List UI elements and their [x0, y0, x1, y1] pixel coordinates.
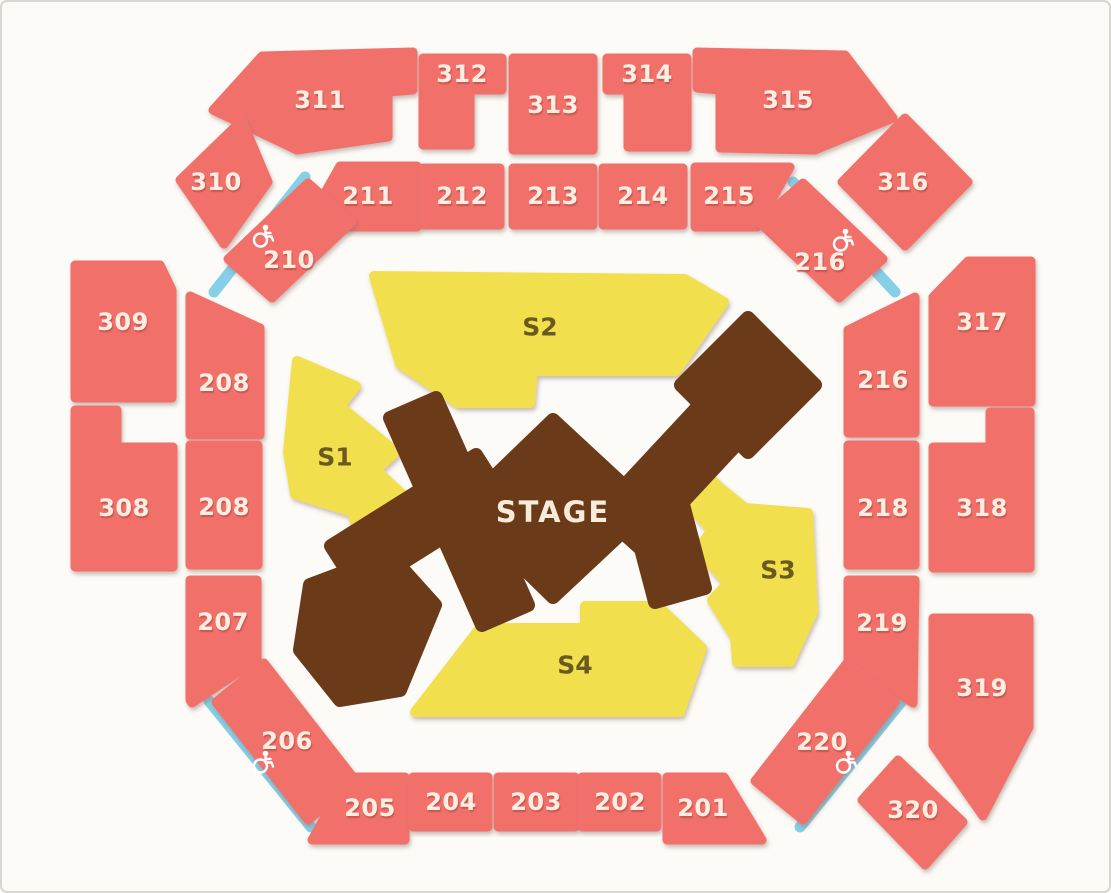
section-212-label: 212	[436, 182, 488, 210]
section-s2[interactable]: S2	[374, 276, 724, 403]
section-315[interactable]: 315	[697, 52, 893, 150]
section-218-label: 218	[857, 494, 909, 522]
section-208-lower[interactable]: 208	[190, 445, 258, 565]
section-214[interactable]: 214	[603, 168, 683, 225]
section-219-label: 219	[856, 609, 908, 637]
section-320-label: 320	[887, 796, 939, 824]
section-210-label: 210	[263, 246, 315, 274]
section-203-label: 203	[510, 788, 562, 816]
section-213-label: 213	[527, 182, 579, 210]
section-204-label: 204	[425, 788, 477, 816]
section-213[interactable]: 213	[513, 168, 593, 225]
section-206-label: 206	[261, 727, 313, 755]
section-320[interactable]: 320	[862, 760, 963, 865]
section-216-right-shape[interactable]	[848, 297, 915, 433]
section-314[interactable]: 314	[607, 58, 687, 147]
section-312[interactable]: 312	[423, 58, 502, 145]
section-319[interactable]: 319	[933, 618, 1029, 816]
section-309[interactable]: 309	[75, 265, 172, 398]
section-316[interactable]: 316	[842, 118, 968, 246]
section-203[interactable]: 203	[498, 777, 575, 827]
section-202[interactable]: 202	[582, 777, 657, 827]
section-s2-label: S2	[522, 313, 557, 342]
section-216-right[interactable]: 216	[848, 297, 915, 433]
section-s3-label: S3	[760, 556, 795, 585]
stage-label: STAGE	[496, 495, 610, 529]
section-212[interactable]: 212	[423, 168, 500, 225]
section-316-label: 316	[877, 168, 929, 196]
section-314-label: 314	[621, 60, 673, 88]
section-214-label: 214	[617, 182, 669, 210]
section-202-label: 202	[594, 788, 646, 816]
section-216-right-label: 216	[857, 366, 909, 394]
section-308-label: 308	[98, 494, 150, 522]
section-312-label: 312	[436, 60, 488, 88]
section-309-label: 309	[97, 308, 149, 336]
section-208-upper-label: 208	[198, 369, 250, 397]
section-308[interactable]: 308	[75, 410, 173, 567]
section-201-label: 201	[677, 794, 729, 822]
section-319-label: 319	[956, 674, 1008, 702]
section-310[interactable]: 310	[180, 120, 268, 244]
section-313[interactable]: 313	[513, 58, 593, 150]
section-319-shape[interactable]	[933, 618, 1029, 816]
section-s1-label: S1	[317, 443, 352, 472]
venue-map: 311 312 313 314 315 310 316 211	[0, 0, 1111, 893]
section-313-label: 313	[527, 91, 579, 119]
section-204[interactable]: 204	[413, 777, 488, 827]
section-311-label: 311	[294, 86, 346, 114]
section-220-label: 220	[796, 728, 848, 756]
section-211-label: 211	[342, 182, 394, 210]
section-310-label: 310	[190, 168, 242, 196]
section-315-label: 315	[762, 86, 814, 114]
section-208-lower-label: 208	[198, 493, 250, 521]
section-317[interactable]: 317	[933, 261, 1031, 402]
section-318-label: 318	[956, 494, 1008, 522]
section-201[interactable]: 201	[667, 777, 762, 840]
section-208-upper[interactable]: 208	[190, 296, 260, 435]
section-317-label: 317	[956, 308, 1008, 336]
section-308-shape[interactable]	[75, 410, 173, 567]
section-215-label: 215	[703, 182, 755, 210]
section-205-label: 205	[344, 794, 396, 822]
section-318[interactable]: 318	[933, 412, 1030, 568]
section-s4-label: S4	[557, 651, 592, 680]
section-218[interactable]: 218	[848, 445, 915, 565]
section-s4[interactable]: S4	[415, 606, 702, 712]
section-318-shape[interactable]	[933, 412, 1030, 568]
seating-chart: 311 312 313 314 315 310 316 211	[0, 0, 1111, 893]
section-207-label: 207	[197, 608, 249, 636]
section-216-diagonal-label: 216	[794, 248, 846, 276]
section-208-upper-shape[interactable]	[190, 296, 260, 435]
